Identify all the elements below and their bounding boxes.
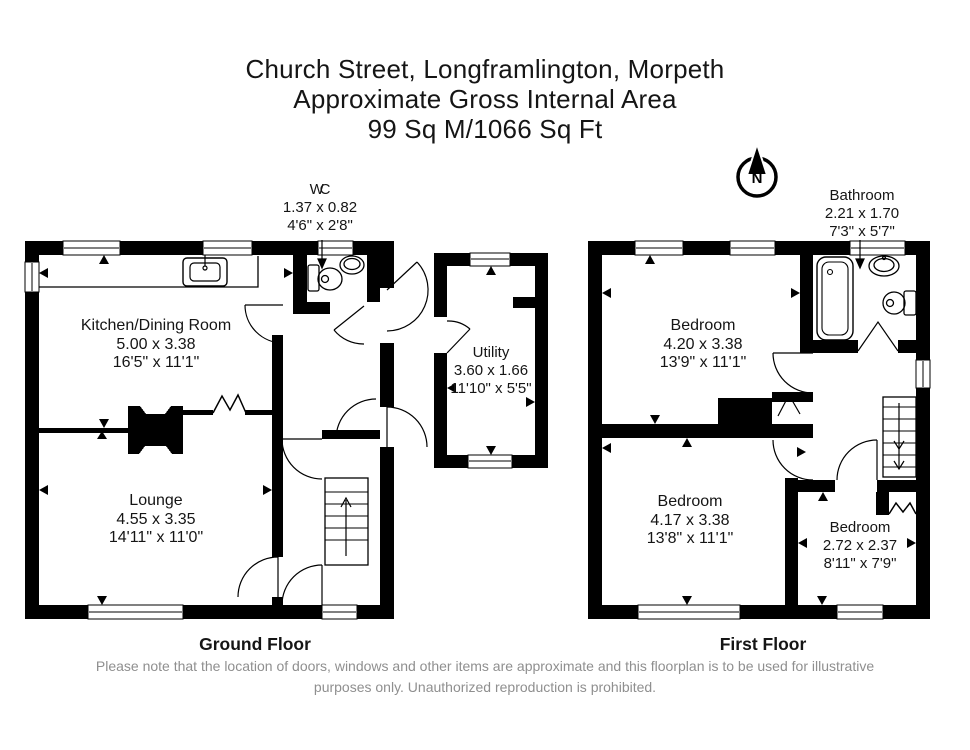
door-arc [334, 306, 364, 344]
measure-arrow [645, 255, 655, 264]
measure-arrow [486, 446, 496, 455]
measure-arrow [284, 268, 293, 278]
measure-arrow [99, 255, 109, 264]
bifold-door-icon [213, 395, 246, 413]
window-icon [468, 455, 512, 468]
room-size-imperial: 4'6" x 2'8" [250, 217, 390, 235]
bathroom-toilet-icon [883, 291, 916, 315]
front-door-opening [322, 605, 357, 619]
measure-arrow [818, 492, 828, 501]
bathroom-basin-icon [869, 256, 899, 276]
door-arc [773, 440, 813, 480]
measure-arrow [486, 266, 496, 275]
measure-arrow [797, 447, 806, 457]
door-arc [282, 439, 322, 479]
room-name: Utility [391, 344, 591, 362]
room-size-metric: 4.20 x 3.38 [603, 336, 803, 355]
measure-arrow [791, 288, 800, 298]
room-name: Kitchen/Dining Room [46, 317, 266, 336]
window-icon [318, 241, 353, 255]
compass-north-letter: N [752, 170, 763, 187]
disclaimer-text: Please note that the location of doors, … [0, 656, 970, 698]
window-icon [635, 241, 683, 255]
room-name: Bedroom [603, 317, 803, 336]
room-size-metric: 1.37 x 0.82 [250, 199, 390, 217]
measure-arrow [39, 268, 48, 278]
stairs-up-icon [325, 478, 368, 565]
room-label-wc: WC 1.37 x 0.82 4'6" x 2'8" [250, 181, 390, 235]
measure-arrow [817, 596, 827, 605]
first-floor-caption: First Floor [720, 634, 807, 655]
room-label-bathroom: Bathroom 2.21 x 1.70 7'3" x 5'7" [772, 187, 952, 241]
fireplace-icon [128, 406, 183, 454]
window-icon [916, 360, 930, 388]
measure-arrow [650, 415, 660, 424]
window-icon [63, 241, 120, 255]
window-icon [88, 605, 183, 619]
bifold-door-icon [889, 503, 916, 514]
room-size-imperial: 16'5" x 11'1" [46, 354, 266, 373]
room-size-imperial: 13'9" x 11'1" [603, 354, 803, 373]
room-size-imperial: 8'11" x 7'9" [770, 555, 950, 573]
stairs-down-icon [883, 397, 916, 477]
room-size-metric: 2.21 x 1.70 [772, 205, 952, 223]
disclaimer-line-2: purposes only. Unauthorized reproduction… [0, 677, 970, 698]
room-name: Bedroom [590, 493, 790, 512]
room-name: WC [310, 181, 331, 199]
ground-floor-caption: Ground Floor [199, 634, 311, 655]
wc-toilet-icon [308, 265, 342, 291]
wc-basin-icon [340, 256, 364, 274]
measure-arrow [526, 397, 535, 407]
room-label-lounge: Lounge 4.55 x 3.35 14'11" x 11'0" [56, 492, 256, 548]
room-label-bedroom-2: Bedroom 4.17 x 3.38 13'8" x 11'1" [590, 493, 790, 549]
bathtub-icon [817, 257, 853, 340]
room-size-imperial: 14'11" x 11'0" [56, 529, 256, 548]
door-arc [282, 565, 322, 605]
door-arc [837, 440, 877, 480]
window-icon [850, 241, 905, 255]
compass-icon: N [738, 144, 776, 196]
window-icon [203, 241, 252, 255]
door-leaf-v [858, 322, 898, 351]
ground-floor-walls [25, 241, 548, 619]
window-icon [837, 605, 883, 619]
window-icon [470, 253, 510, 266]
kitchen-sink-icon [183, 255, 227, 286]
room-size-metric: 2.72 x 2.37 [770, 537, 950, 555]
room-size-imperial: 11'10" x 5'5" [391, 380, 591, 398]
room-size-metric: 3.60 x 1.66 [391, 362, 591, 380]
ground-floor-plan [25, 240, 548, 619]
room-size-metric: 5.00 x 3.38 [46, 336, 266, 355]
window-icon [730, 241, 775, 255]
room-label-kitchen: Kitchen/Dining Room 5.00 x 3.38 16'5" x … [46, 317, 266, 373]
door-arc [387, 407, 427, 447]
window-icon [25, 262, 39, 292]
door-arc [238, 557, 278, 597]
room-size-metric: 4.17 x 3.38 [590, 512, 790, 531]
room-size-imperial: 7'3" x 5'7" [772, 223, 952, 241]
room-name: Lounge [56, 492, 256, 511]
measure-arrow [263, 485, 272, 495]
room-size-imperial: 13'8" x 11'1" [590, 530, 790, 549]
measure-arrow [682, 438, 692, 447]
floorplan-page: Church Street, Longframlington, Morpeth … [0, 0, 970, 750]
measure-arrow [602, 288, 611, 298]
measure-arrow [602, 443, 611, 453]
measure-arrow [99, 419, 109, 428]
kitchen-counter [39, 256, 258, 287]
measure-arrow [682, 596, 692, 605]
measure-arrow [97, 596, 107, 605]
room-name: Bedroom [770, 519, 950, 537]
room-name: Bathroom [772, 187, 952, 205]
room-label-bedroom-1: Bedroom 4.20 x 3.38 13'9" x 11'1" [603, 317, 803, 373]
chimney-breast [718, 398, 772, 438]
room-label-utility: Utility 3.60 x 1.66 11'10" x 5'5" [391, 344, 591, 398]
room-label-bedroom-3: Bedroom 2.72 x 2.37 8'11" x 7'9" [770, 519, 950, 573]
measure-arrow [39, 485, 48, 495]
disclaimer-line-1: Please note that the location of doors, … [0, 656, 970, 677]
window-icon [638, 605, 740, 619]
room-size-metric: 4.55 x 3.35 [56, 511, 256, 530]
